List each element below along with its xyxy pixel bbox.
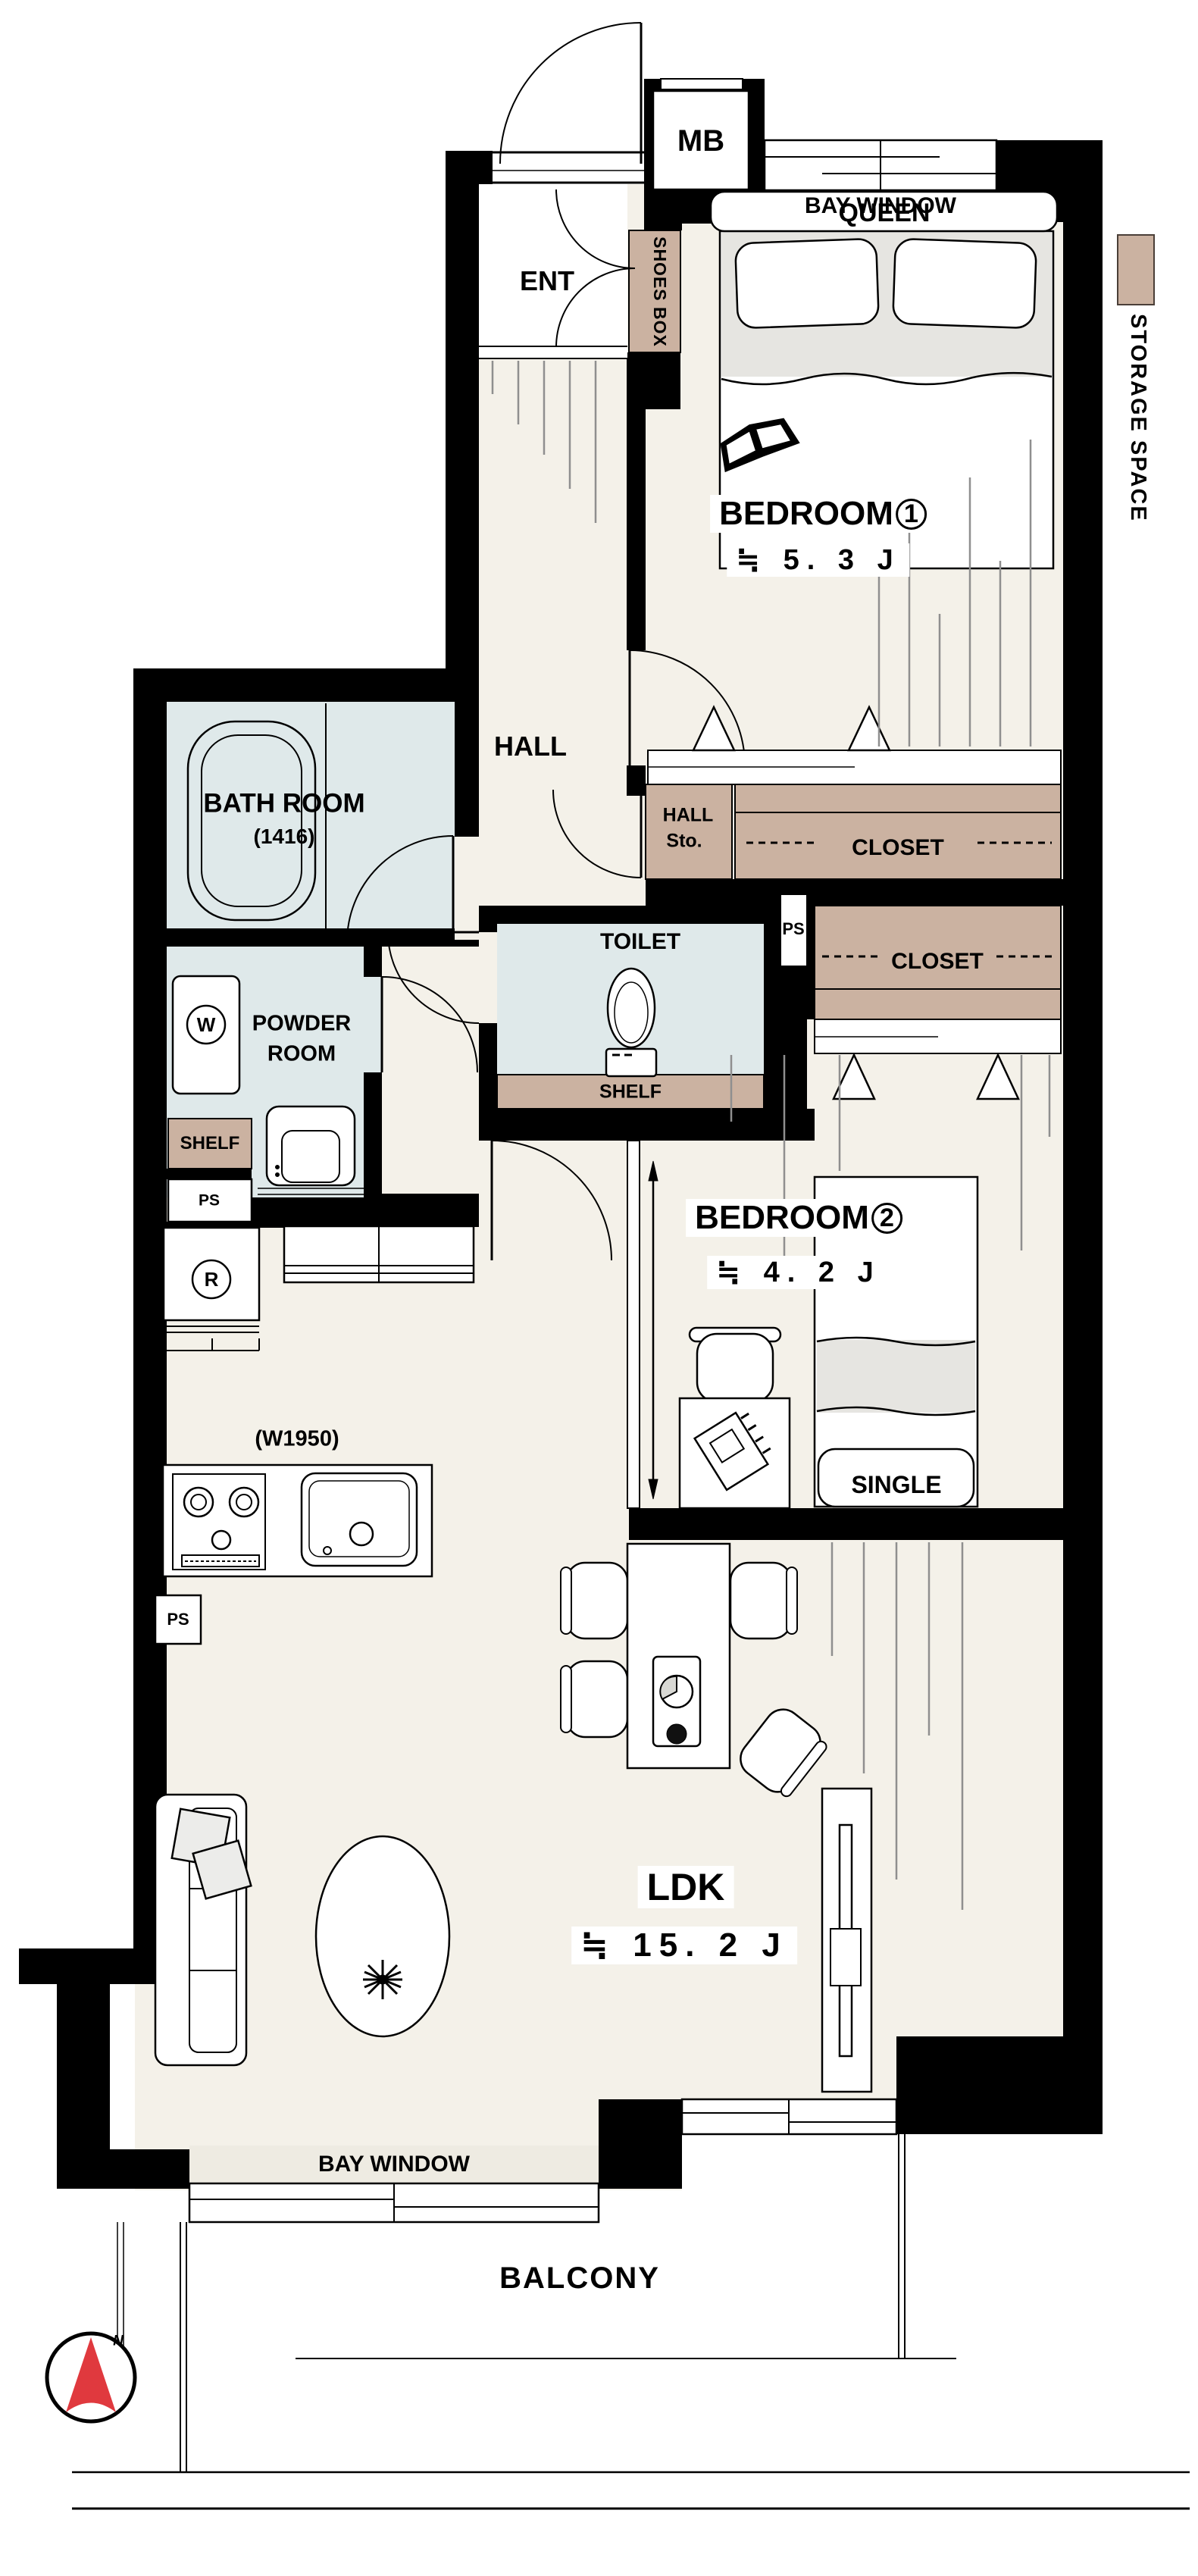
- dining-chair: [730, 1563, 791, 1639]
- queen-bed-label: QUEEN: [839, 200, 931, 226]
- pipe-space-lower-label: PS: [167, 1611, 189, 1628]
- kitchen-sink: [302, 1473, 417, 1566]
- bathroom-size: (1416): [254, 826, 315, 847]
- bedroom1-number: 1: [896, 499, 927, 530]
- entrance-label: ENT: [520, 268, 574, 295]
- powder-room-name1: POWDER: [252, 1013, 352, 1035]
- closet2-label: CLOSET: [891, 950, 984, 973]
- shelf-left-label: SHELF: [180, 1135, 240, 1153]
- hall-storage-label1: HALL: [663, 806, 714, 825]
- dining-chair: [567, 1563, 627, 1639]
- ldk-size: ≒ 15. 2 J: [571, 1927, 797, 1964]
- closet1: [735, 784, 1061, 879]
- vanity-sink: [258, 1106, 364, 1194]
- meter-box-label: MB: [677, 126, 724, 156]
- bay-window-bottom-label: BAY WINDOW: [318, 2153, 470, 2176]
- bedroom2-name: BEDROOM2: [686, 1199, 912, 1237]
- dining-chair: [567, 1661, 627, 1737]
- bedroom2-size: ≒ 4. 2 J: [707, 1256, 890, 1289]
- toilet-shelf-label: SHELF: [599, 1083, 662, 1102]
- toilet-label: TOILET: [600, 931, 680, 953]
- toilet-fixture: [606, 969, 656, 1076]
- kitchen-counter: [163, 1465, 432, 1576]
- bedroom2-number: 2: [871, 1203, 902, 1234]
- sofa: [155, 1795, 251, 2065]
- compass-north-label: N: [113, 2334, 124, 2349]
- storage-space-swatch: [1118, 235, 1154, 305]
- single-bed-label: SINGLE: [851, 1473, 941, 1497]
- floor-plan-drawing: [0, 0, 1198, 2576]
- kitchen-width-label: (W1950): [255, 1429, 339, 1451]
- shoes-box-label: SHOES BOX: [651, 229, 668, 355]
- hall-storage-label2: Sto.: [666, 832, 702, 851]
- kitchen-upper-counter: [284, 1226, 474, 1282]
- ldk-name: LDK: [638, 1866, 734, 1908]
- bedroom1-name: BEDROOM1: [710, 495, 936, 533]
- pipe-space-upper-label: PS: [782, 921, 804, 937]
- pipe-space-left-label: PS: [199, 1193, 220, 1209]
- storage-space-legend: STORAGE SPACE: [1127, 314, 1149, 522]
- hall-label: HALL: [494, 733, 567, 760]
- bedroom1-size: ≒ 5. 3 J: [727, 543, 909, 577]
- floor-plan-page: ENT SHOES BOX MB BAY WINDOW QUEEN BEDROO…: [0, 0, 1198, 2576]
- closet1-label: CLOSET: [852, 837, 944, 859]
- powder-room-name2: ROOM: [267, 1044, 336, 1066]
- ldk-balcony-window: [682, 2099, 896, 2134]
- desk: [680, 1328, 790, 1508]
- tv-board: [822, 1789, 871, 2092]
- plant-icon: [363, 1960, 402, 1999]
- pillow: [893, 239, 1037, 328]
- washer-label: W: [197, 1015, 216, 1034]
- refrigerator-label: R: [205, 1269, 219, 1289]
- rug-plant: [316, 1836, 449, 2036]
- balcony-label: BALCONY: [499, 2263, 660, 2293]
- pillow: [735, 239, 879, 328]
- desk-chair: [697, 1334, 773, 1402]
- cup: [667, 1724, 687, 1744]
- grill: [182, 1555, 259, 1567]
- bathroom-name: BATH ROOM: [203, 790, 364, 817]
